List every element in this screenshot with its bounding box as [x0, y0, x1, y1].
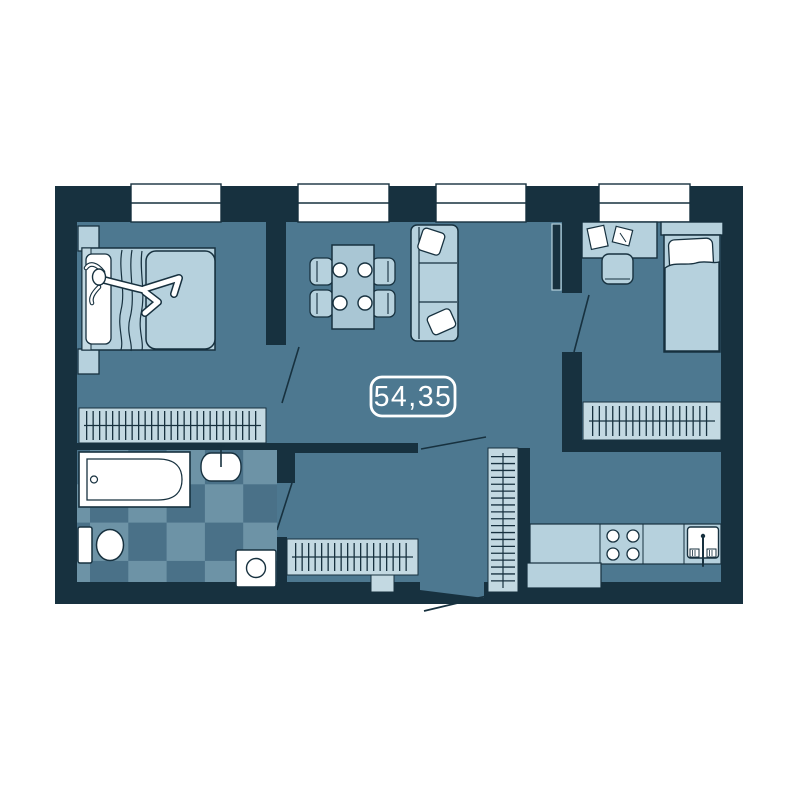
chair — [310, 258, 333, 285]
window-3 — [436, 184, 526, 222]
window-4 — [599, 184, 690, 222]
wall-bath-hall-bottom — [277, 537, 287, 583]
window-2 — [298, 184, 389, 222]
wall-living-hall — [286, 443, 418, 453]
burner — [627, 530, 639, 542]
wardrobe-bedroom2 — [583, 402, 721, 440]
bathroom — [77, 444, 277, 587]
sofa — [411, 225, 458, 341]
burner — [627, 548, 639, 560]
chair — [310, 290, 333, 317]
burner — [607, 548, 619, 560]
wall-living-bedroom2-bottom — [562, 352, 582, 445]
chair — [372, 258, 395, 285]
wall-master-bath — [77, 443, 295, 450]
single-bed — [661, 222, 723, 352]
single-bed-blanket — [665, 262, 719, 351]
wall-bedroom2-kitchen — [562, 440, 743, 452]
washing-machine — [236, 550, 276, 587]
wall-hall-kitchen — [518, 448, 530, 582]
shoe-cabinet — [371, 575, 394, 592]
plate — [358, 263, 372, 277]
wall-bath-hall-top — [277, 450, 295, 483]
nightstand-bottom — [78, 349, 99, 374]
dining-table — [332, 245, 374, 329]
wall-master-living — [266, 222, 286, 345]
wardrobe-long — [287, 539, 418, 575]
floor-plan: 54,35 — [0, 0, 800, 800]
double-bed — [82, 248, 215, 351]
chair — [372, 290, 395, 317]
tv — [552, 224, 561, 290]
area-label-badge: 54,35 — [371, 377, 455, 416]
wall-living-bedroom2-top — [562, 222, 582, 293]
bathtub — [79, 452, 190, 507]
plate — [358, 296, 372, 310]
window-1 — [131, 184, 221, 222]
plate — [333, 296, 347, 310]
counter-extension — [527, 563, 601, 588]
plate — [333, 263, 347, 277]
burner — [607, 530, 619, 542]
wardrobe-tall — [488, 448, 518, 592]
floor-plan-page: 54,35 — [0, 0, 800, 800]
person-head — [93, 269, 106, 285]
wardrobe-master — [79, 408, 266, 443]
area-label: 54,35 — [374, 381, 453, 413]
single-bed-headboard — [661, 222, 723, 235]
